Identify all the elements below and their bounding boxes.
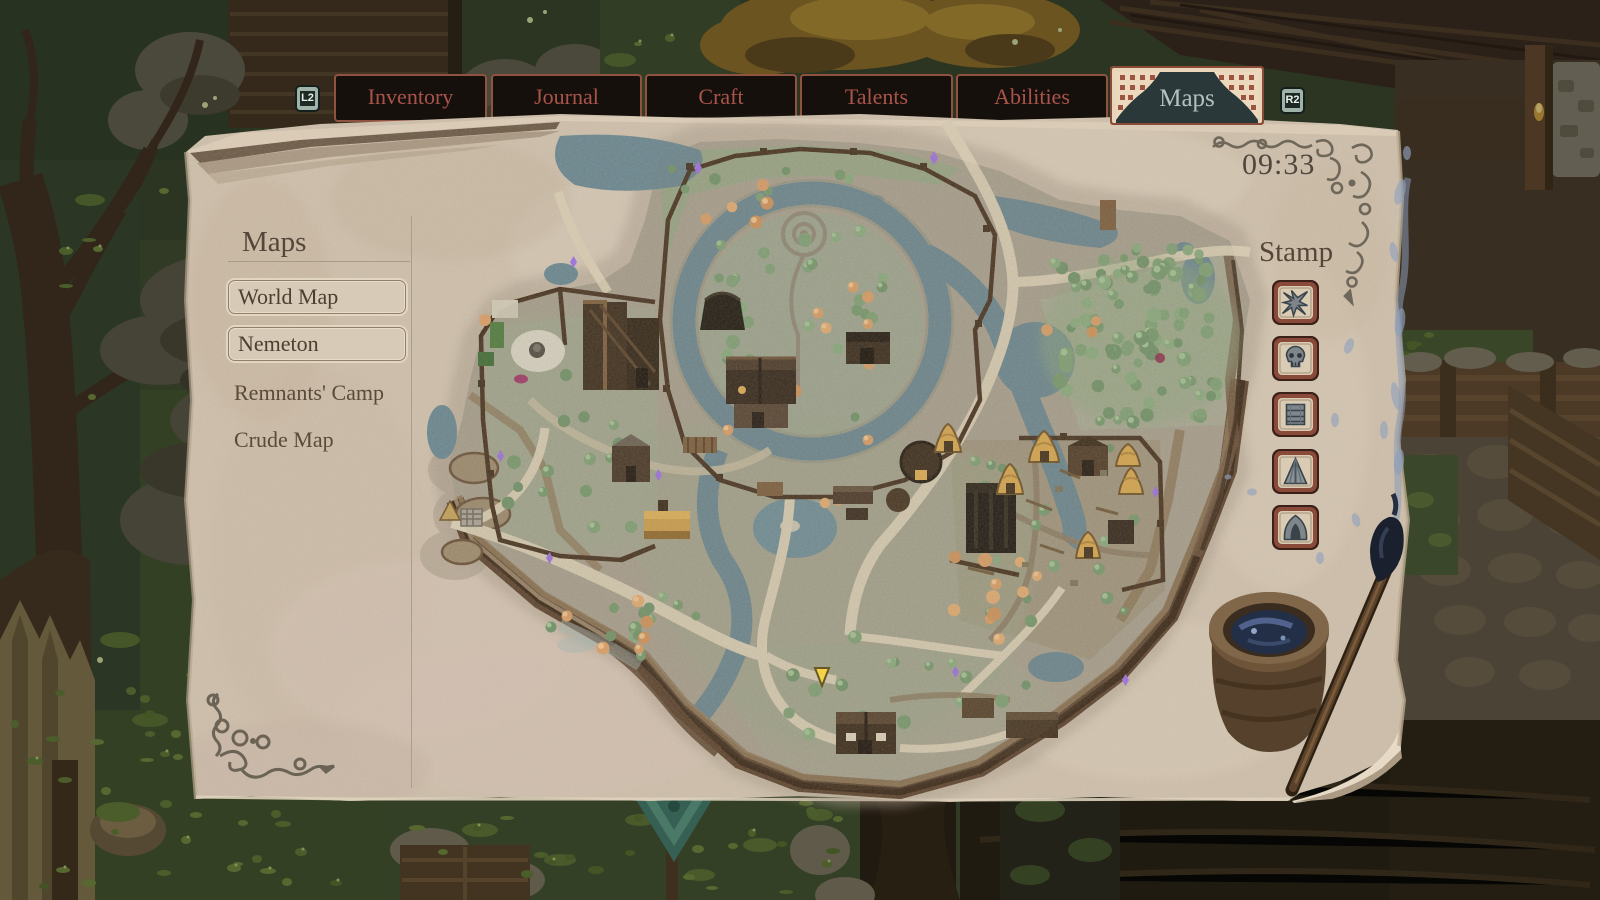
svg-text:Maps: Maps [1159, 85, 1215, 112]
